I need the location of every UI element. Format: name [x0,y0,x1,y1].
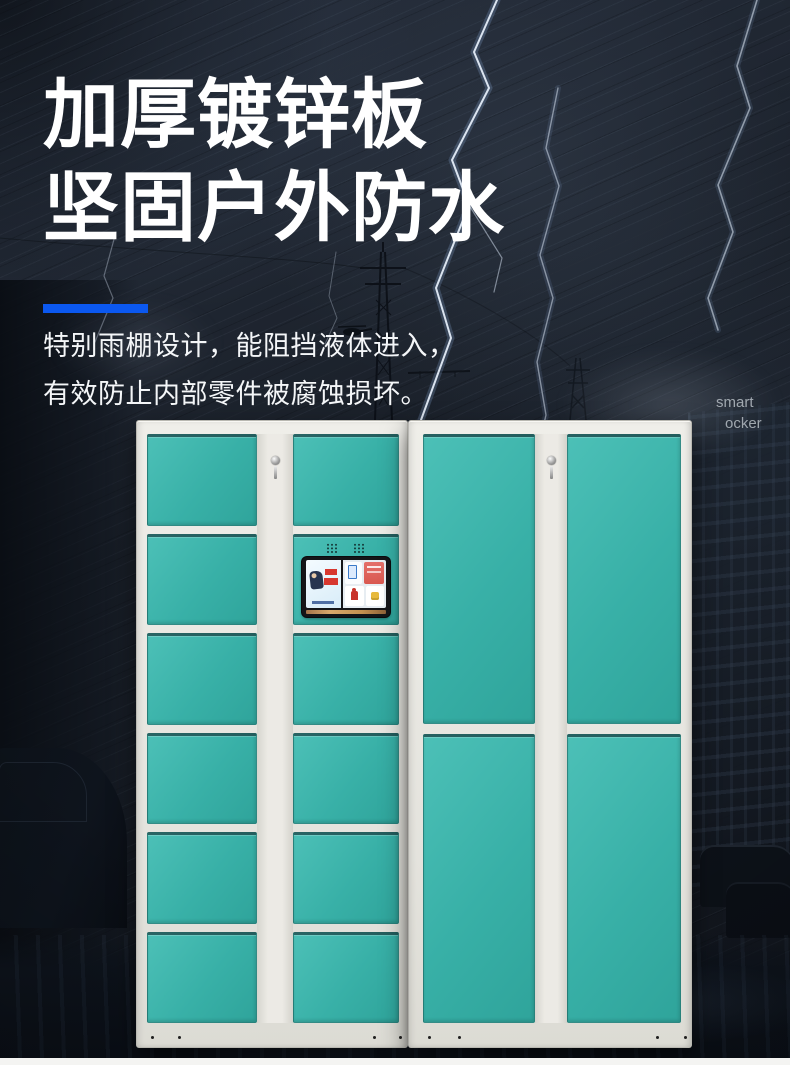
locker-door [293,434,399,526]
speaker-holes-icon [353,543,366,554]
screen-footer-bar [306,610,386,614]
locker-door [147,534,257,626]
mascot-figure-icon [309,570,324,589]
package-icon [371,592,379,600]
base-screw-dot [151,1036,154,1039]
base-screw-dot [178,1036,181,1039]
locker-door [567,734,681,1024]
screen-content [306,560,386,608]
mascot-red-label [325,569,337,575]
speaker-holes-icon [326,543,339,554]
locker-door-column [147,434,257,1023]
locker-control-door [293,534,399,626]
control-panel [294,537,398,625]
base-screw-dot [656,1036,659,1039]
base-screw-dot [373,1036,376,1039]
headline-line-2: 坚固户外防水 [43,171,505,247]
screen-red-banner [364,562,384,584]
locker-lock-strip [257,434,293,1023]
locker-door [147,932,257,1024]
locker-door-column [567,434,681,1023]
locker-door [293,733,399,825]
screen-tile-yellow [366,586,384,606]
subtitle-line-2: 有效防止内部零件被腐蚀损坏。 [43,381,428,408]
control-screen [302,557,390,617]
locker-door-column [293,434,399,1023]
locker-cabinet-left [136,420,408,1048]
base-screw-dot [399,1036,402,1039]
courier-icon [351,591,358,600]
screen-mascot-panel [306,560,341,608]
watermark: smart ocker [716,392,762,434]
locker-door [147,733,257,825]
locker-door [423,434,535,724]
keyhole-icon [270,456,280,479]
locker-base [137,1023,407,1047]
locker-door [147,832,257,924]
locker-door [147,434,257,526]
page-bottom-margin [0,1058,790,1065]
watermark-line-1: smart [716,392,762,413]
locker-door [293,633,399,725]
promo-poster: { "hero": { "title_line1": "加厚镀锌板", "tit… [0,0,790,1065]
locker-door [293,832,399,924]
mascot-red-label [324,578,338,585]
speaker-grill [326,543,366,554]
locker-door [423,734,535,1024]
base-screw-dot [428,1036,431,1039]
locker-door [147,633,257,725]
subtitle-line-1: 特别雨棚设计，能阻挡液体进入， [43,333,456,360]
locker-cabinet-right [408,420,692,1048]
base-screw-dot [684,1036,687,1039]
accent-divider-bar [43,304,148,313]
watermark-line-2: ocker [716,413,762,434]
screen-tile-row [345,586,384,606]
locker-door [567,434,681,724]
locker-lock-strip [535,434,567,1023]
base-screw-dot [458,1036,461,1039]
screen-tile-red [345,586,363,606]
locker-base [409,1023,691,1047]
headline-line-1: 加厚镀锌板 [43,78,428,154]
keyhole-icon [546,456,556,479]
mascot-caption-line [312,601,334,604]
locker-door-column [423,434,535,1023]
screen-menu-panel [343,560,386,608]
screen-banner-row [345,562,384,584]
smart-locker-product-photo [0,0,790,1065]
locker-door [293,932,399,1024]
screen-phone-graphic [345,562,361,584]
